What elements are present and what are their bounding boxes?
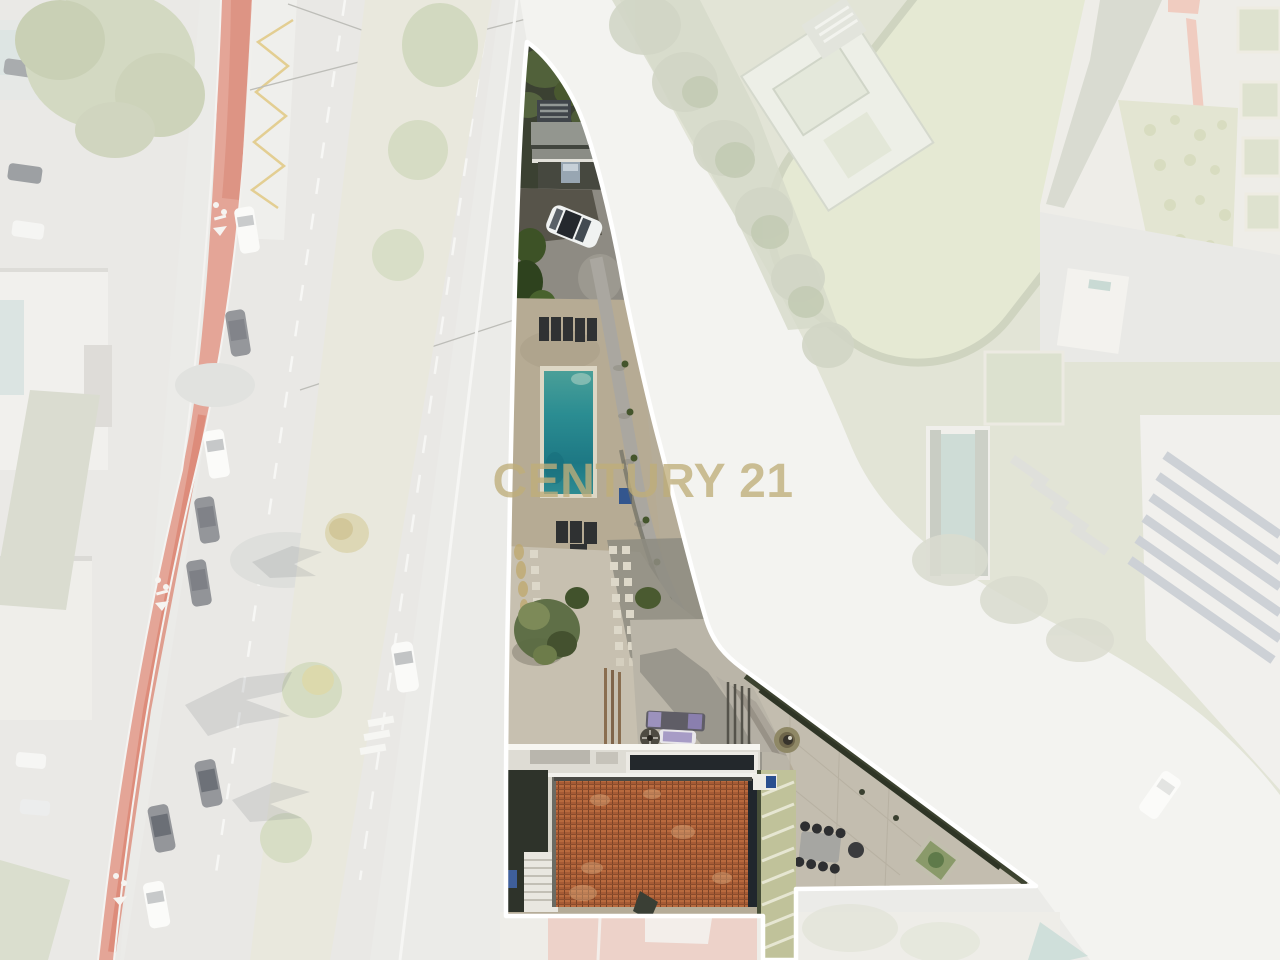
svg-text:CENTURY 21: CENTURY 21 bbox=[492, 455, 793, 508]
